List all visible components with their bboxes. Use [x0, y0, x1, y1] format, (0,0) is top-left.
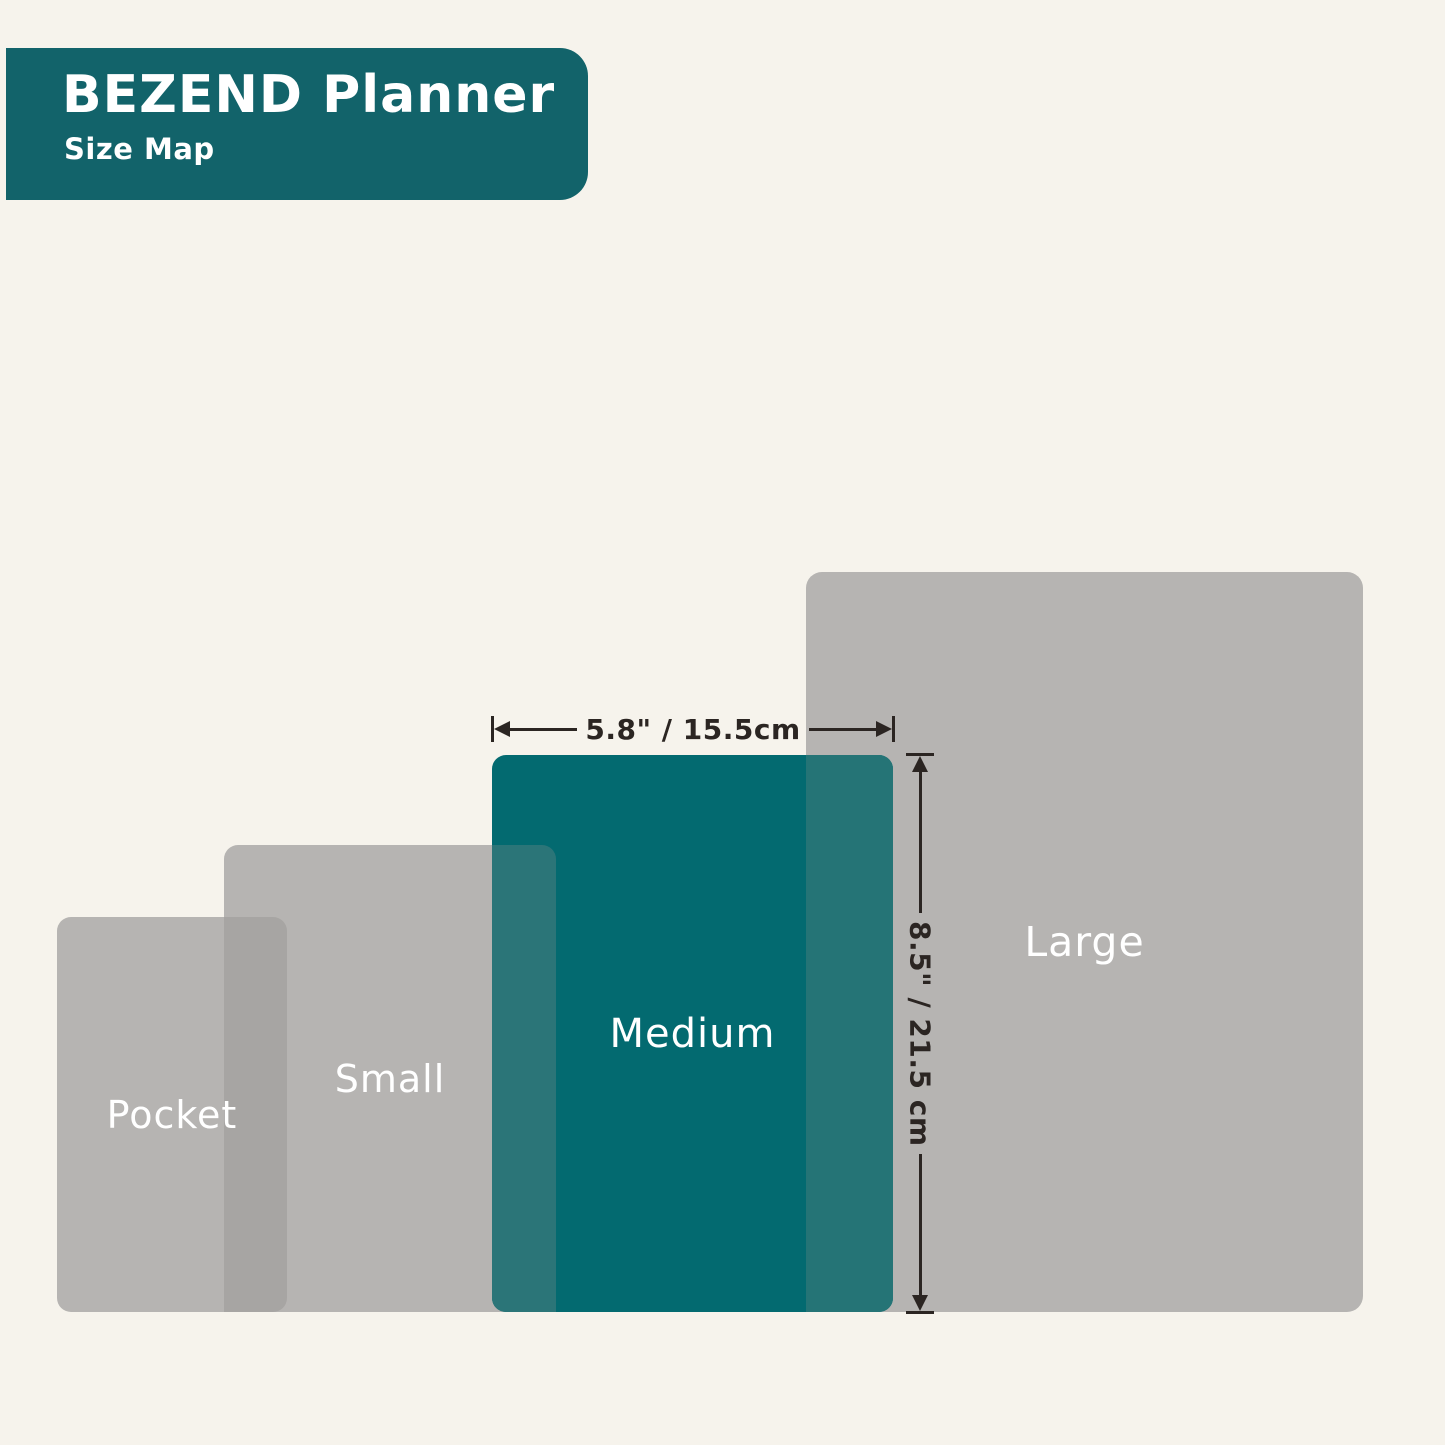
arrow-left-icon [494, 721, 510, 737]
arrow-right-icon [876, 721, 892, 737]
dimension-line [809, 728, 876, 731]
size-label-small: Small [335, 1057, 446, 1101]
arrow-up-icon [912, 756, 928, 772]
height-dimension-label: 8.5" / 21.5 cm [904, 913, 937, 1155]
arrow-down-icon [912, 1295, 928, 1311]
dimension-tick [906, 1311, 934, 1314]
dimension-line [919, 772, 922, 913]
width-dimension-annotation: 5.8" / 15.5cm [491, 712, 895, 746]
dimension-line [510, 728, 577, 731]
size-rect-pocket: Pocket [57, 917, 287, 1312]
size-map-infographic: BEZEND Planner Size Map Large Small Pock… [0, 0, 1445, 1445]
dimension-tick [892, 716, 895, 742]
size-label-medium: Medium [610, 1011, 776, 1057]
header-banner: BEZEND Planner Size Map [6, 48, 588, 200]
size-label-pocket: Pocket [107, 1093, 238, 1137]
size-label-large: Large [1024, 918, 1144, 966]
medium-large-overlap-band [806, 755, 893, 1312]
size-rect-medium: Medium [492, 755, 893, 1312]
width-dimension-label: 5.8" / 15.5cm [577, 713, 808, 746]
height-dimension-annotation: 8.5" / 21.5 cm [905, 753, 935, 1314]
medium-small-overlap-band [492, 845, 556, 1312]
page-subtitle: Size Map [64, 132, 588, 166]
dimension-line [919, 1154, 922, 1295]
page-title: BEZEND Planner [62, 64, 588, 126]
